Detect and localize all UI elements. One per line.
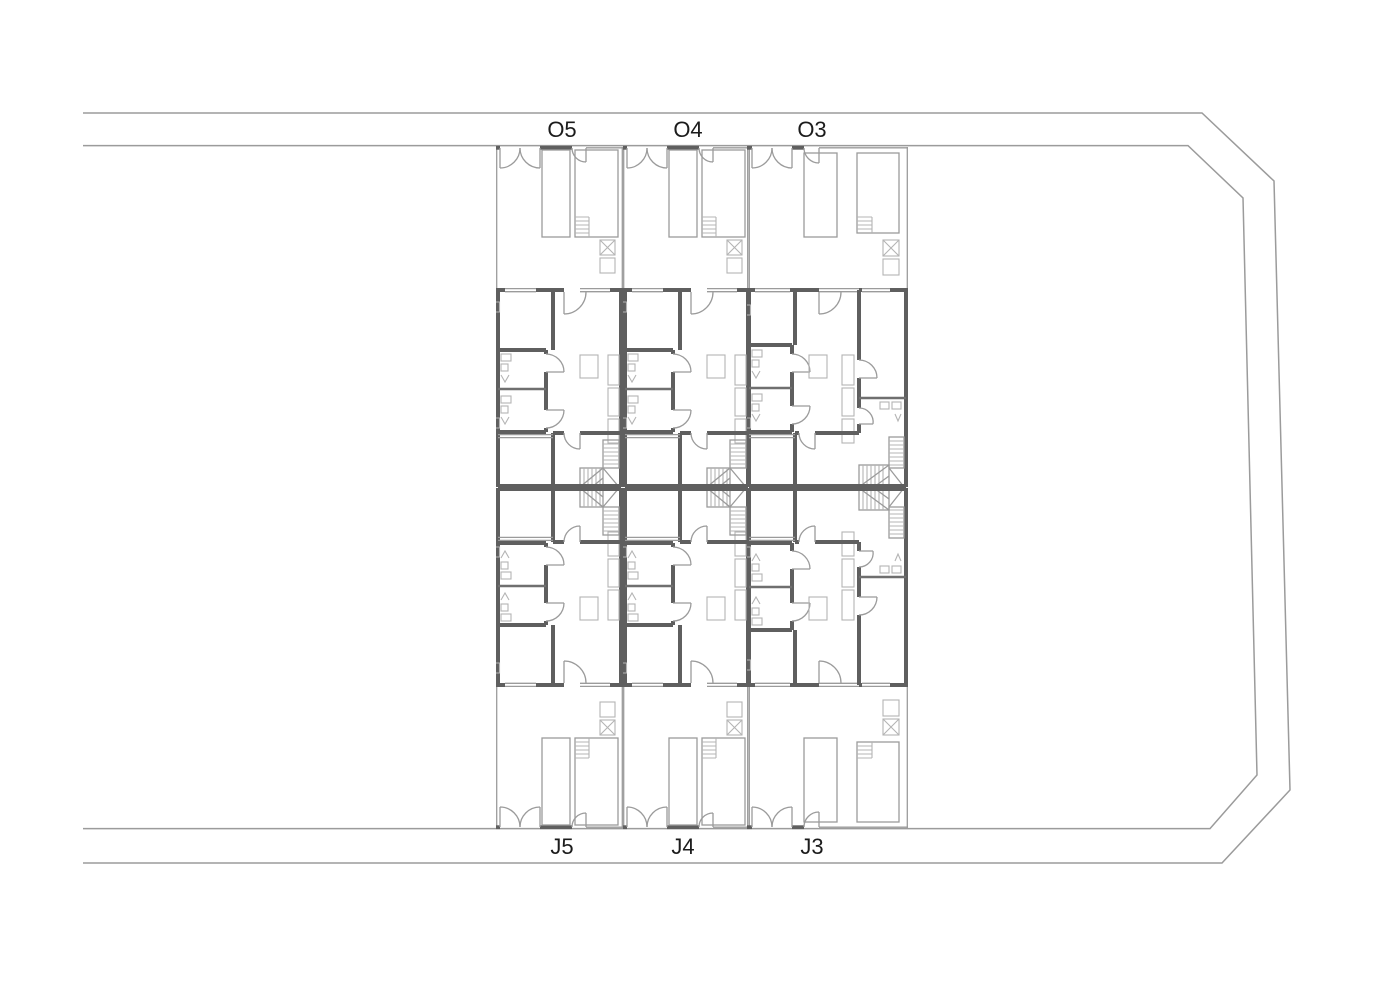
- unit-strip-o4-j4: [623, 146, 750, 829]
- floor-plan-svg: O5 O4 O3 J5 J4 J3: [0, 0, 1400, 989]
- unit-label-j5: J5: [550, 834, 573, 859]
- unit-label-o5: O5: [547, 117, 576, 142]
- unit-label-j3: J3: [800, 834, 823, 859]
- unit-label-o3: O3: [797, 117, 826, 142]
- unit-strip-o5-j5: [496, 146, 623, 829]
- unit-label-j4: J4: [671, 834, 694, 859]
- floor-plan-page: O5 O4 O3 J5 J4 J3: [0, 0, 1400, 989]
- unit-label-o4: O4: [673, 117, 702, 142]
- unit-strip-o3-j3: [747, 146, 908, 829]
